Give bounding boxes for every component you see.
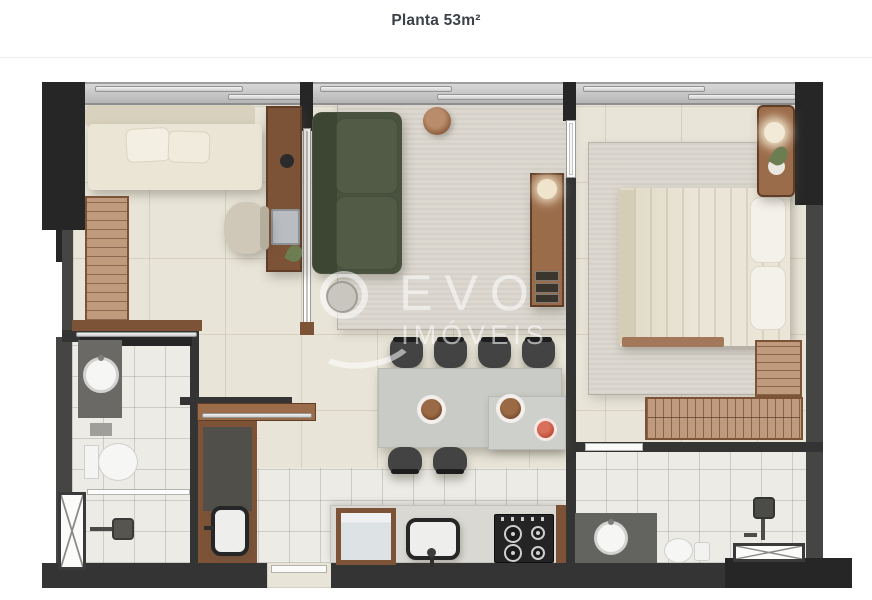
stove-burner [531,546,545,560]
suite-shower-stem [761,519,765,540]
header-divider [0,57,872,58]
window-rail [688,94,796,100]
fruit-bowl [534,418,557,441]
daybed-pillow [125,127,171,163]
laundry-cabinet-inset [203,427,252,511]
dining-chair [434,337,467,368]
bathroom-window [58,492,86,570]
bed-pillow [750,266,786,330]
dining-chair [433,447,467,474]
nightstand-lamp [764,122,785,143]
window-rail [320,86,452,92]
dining-chair [478,337,511,368]
shower-drain [112,518,134,540]
dining-chair [388,447,422,474]
stove-burner [531,526,545,540]
desk-lamp [280,154,294,168]
sink-faucet [98,355,104,361]
sofa-cushion [336,118,398,194]
partition-post-bedroom [563,82,576,121]
centerpiece-plate [417,395,446,424]
suite-shower-valve [744,533,757,537]
toilet-bowl [98,443,138,481]
suite-sink [594,521,628,555]
bottom-right-block [725,558,852,588]
stove-burner [504,525,522,543]
clothes-rack [85,196,129,322]
shower-glass [87,489,190,495]
glass-partition-foot [300,322,314,335]
window-rail [228,94,306,100]
daybed-pillow [167,130,210,163]
dining-chair [390,337,423,368]
media-device [535,294,559,303]
wardrobe-divider [648,417,800,418]
bathroom-sink [83,357,119,393]
laundry-shelf [197,403,316,421]
centerpiece-plate [496,394,525,423]
bedroom-partition-wall [566,178,576,563]
side-table [423,107,451,135]
wardrobe-upper [755,340,802,397]
bed-throw [618,190,634,344]
washing-machine [336,508,396,565]
suite-window [733,543,805,562]
entrance-door [271,565,327,573]
right-wall [806,205,823,558]
bathroom-shelf [90,423,112,436]
office-glass-partition [303,128,311,326]
bedroom-sliding-glass-door [566,120,576,178]
water-heater [694,542,710,561]
laundry-door-track [202,413,312,418]
bed-pillow [750,197,786,263]
sofa-cushion [336,196,398,270]
bed-frame [622,337,724,347]
suite-bathroom-door [585,443,643,451]
laptop [271,209,300,245]
cabinet-lamp [537,179,557,199]
wardrobe-lower [645,397,803,440]
column-top-right [795,82,823,205]
utility-sink [211,506,249,556]
sofa-backrest [313,113,337,273]
column-top-left [42,82,85,230]
suite-toilet [664,538,693,563]
window-rail [95,86,243,92]
stove-burner [504,544,522,562]
counter-end-panel [556,505,566,563]
office-chair-back [260,206,269,250]
suite-shower-head [753,497,775,519]
toilet-tank [84,445,99,479]
bottom-wall-mid [331,563,725,588]
dining-chair [522,337,555,368]
window-rail [437,94,565,100]
window-rail [583,86,705,92]
media-device [535,271,559,281]
page-title: Planta 53m² [0,12,872,30]
utility-sink-faucet [204,526,214,530]
stove-knobs [501,517,547,521]
media-device [535,283,559,293]
kitchen-faucet [427,548,436,557]
kitchen-faucet-stem [430,556,434,567]
stove [494,514,554,563]
suite-sink-faucet [608,519,614,525]
floor-lamp [326,281,358,313]
floorplan-page: Planta 53m² [0,0,872,600]
